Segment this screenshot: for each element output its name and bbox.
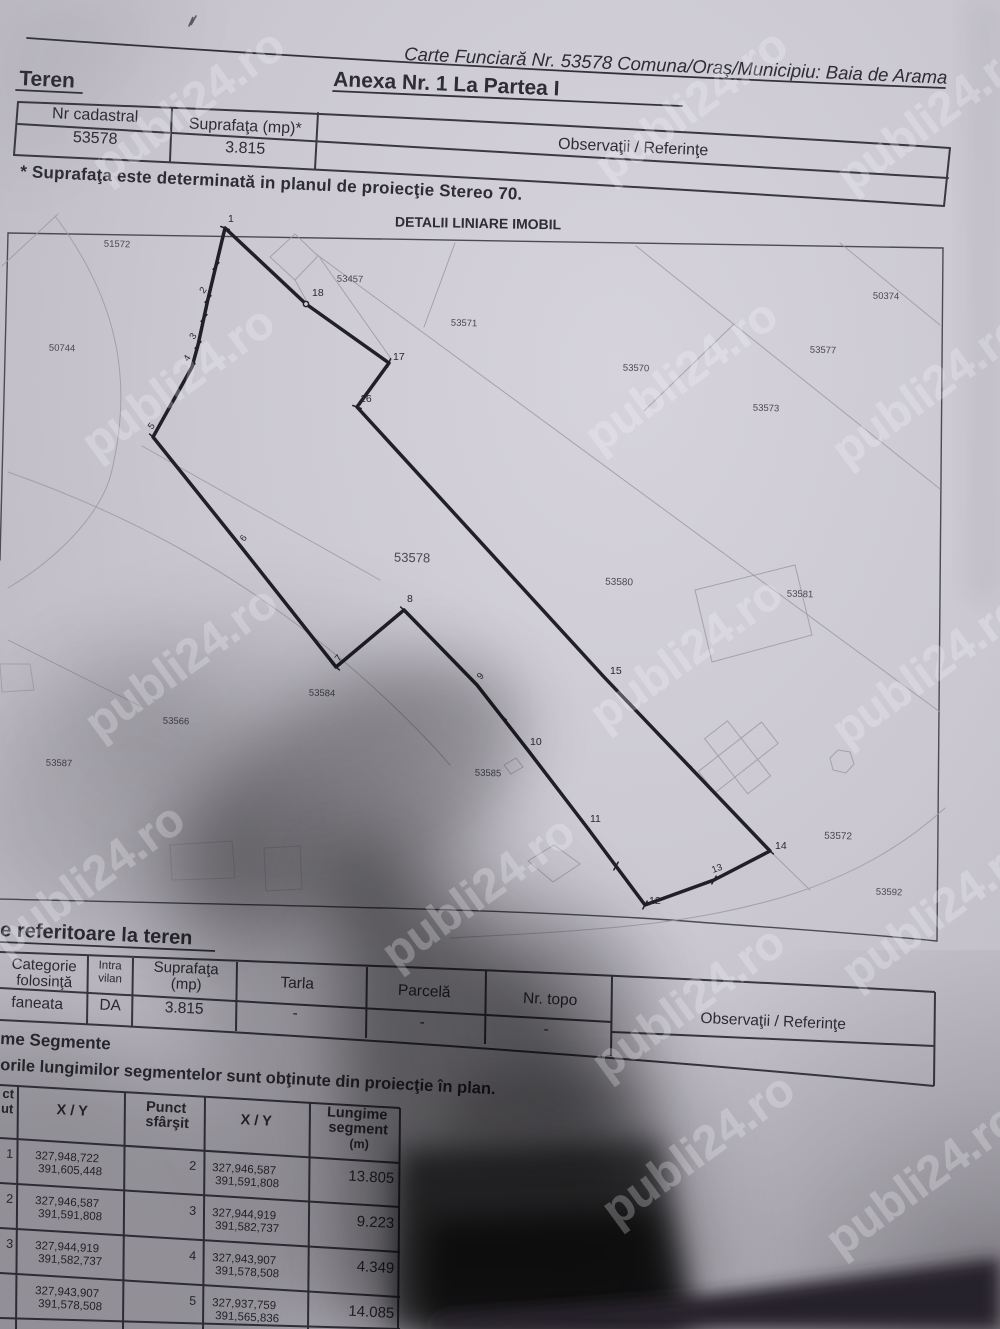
svg-text:53571: 53571 xyxy=(451,318,478,330)
svg-text:14: 14 xyxy=(775,840,787,852)
svg-text:53580: 53580 xyxy=(605,577,634,589)
svg-text:53577: 53577 xyxy=(810,345,837,357)
svg-text:51572: 51572 xyxy=(104,239,131,251)
svg-text:faneata: faneata xyxy=(11,994,64,1013)
svg-text:Intra: Intra xyxy=(98,960,122,973)
svg-text:10: 10 xyxy=(530,736,542,748)
svg-text:1: 1 xyxy=(228,213,234,225)
svg-text:Teren: Teren xyxy=(19,67,76,93)
svg-text:50744: 50744 xyxy=(49,343,76,355)
svg-text:folosinţă: folosinţă xyxy=(16,972,73,991)
svg-text:18: 18 xyxy=(312,287,324,299)
svg-text:16: 16 xyxy=(360,393,372,405)
svg-text:53457: 53457 xyxy=(337,274,364,286)
svg-text:DA: DA xyxy=(99,997,122,1015)
svg-text:DETALII LINIARE IMOBIL: DETALII LINIARE IMOBIL xyxy=(395,214,562,233)
svg-text:53578: 53578 xyxy=(394,550,431,566)
svg-text:17: 17 xyxy=(393,351,405,363)
svg-text:8: 8 xyxy=(407,593,413,605)
svg-text:53573: 53573 xyxy=(753,403,780,415)
svg-text:53592: 53592 xyxy=(876,887,903,899)
svg-text:53572: 53572 xyxy=(824,831,853,843)
svg-text:3.815: 3.815 xyxy=(225,139,266,158)
svg-text:53581: 53581 xyxy=(787,589,814,601)
svg-text:12: 12 xyxy=(649,895,661,907)
svg-text:vilan: vilan xyxy=(98,972,122,985)
svg-text:11: 11 xyxy=(590,813,601,825)
svg-text:50374: 50374 xyxy=(873,291,900,303)
